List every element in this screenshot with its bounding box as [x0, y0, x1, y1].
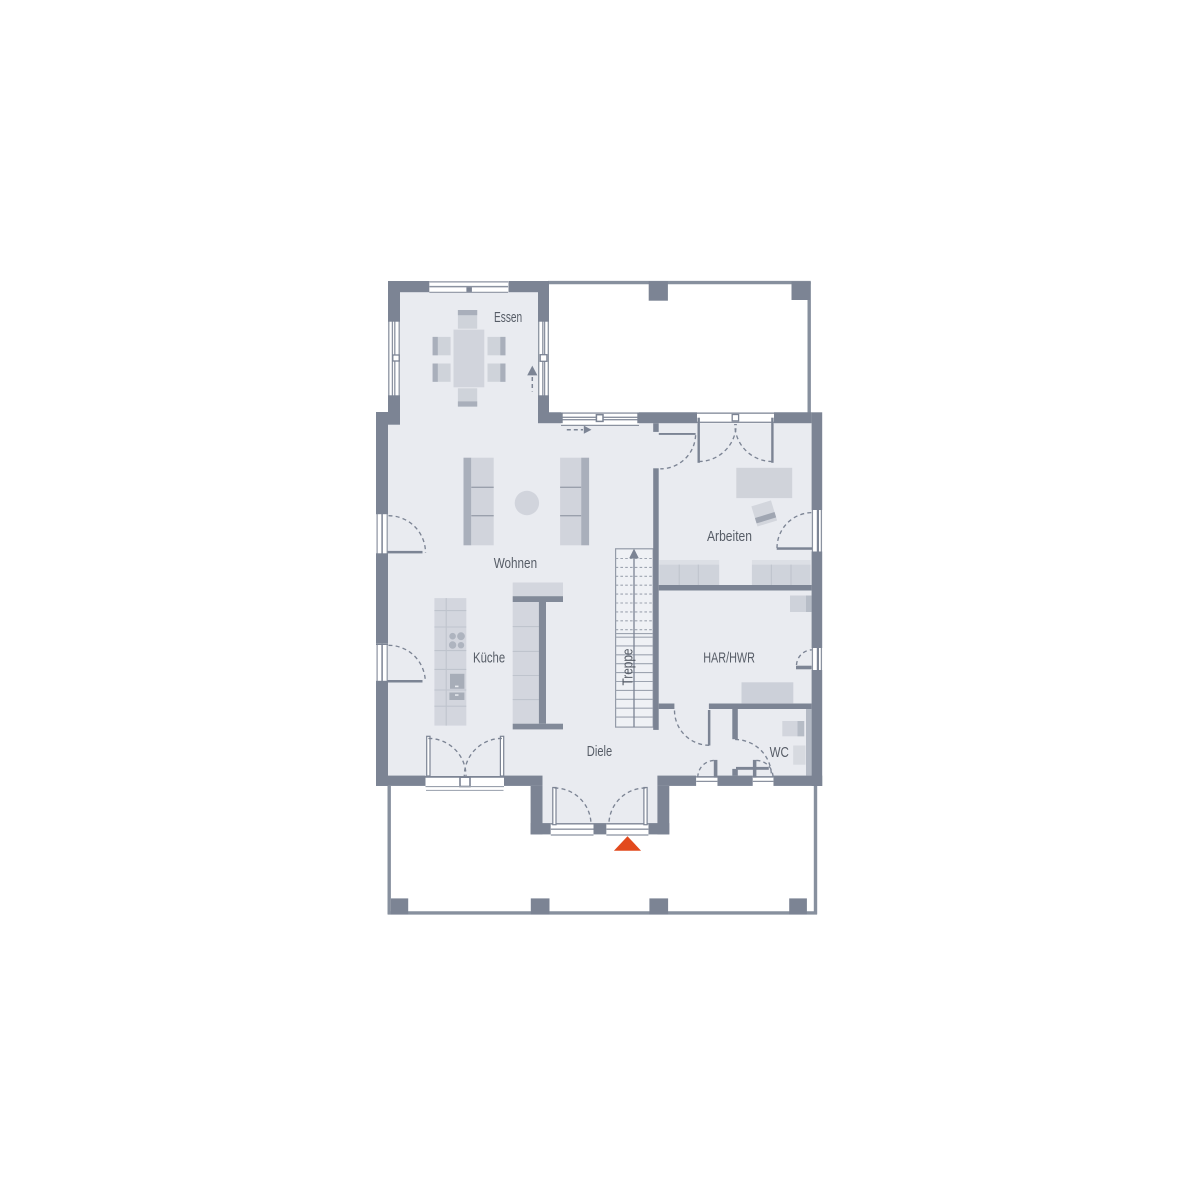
svg-text:WC: WC: [770, 745, 790, 761]
svg-text:Arbeiten: Arbeiten: [707, 529, 752, 545]
svg-text:Essen: Essen: [494, 310, 522, 326]
svg-text:HAR/HWR: HAR/HWR: [703, 650, 755, 666]
svg-text:Diele: Diele: [587, 744, 612, 760]
svg-text:Treppe: Treppe: [620, 649, 636, 686]
svg-text:Wohnen: Wohnen: [494, 556, 537, 572]
svg-text:Küche: Küche: [473, 650, 505, 666]
